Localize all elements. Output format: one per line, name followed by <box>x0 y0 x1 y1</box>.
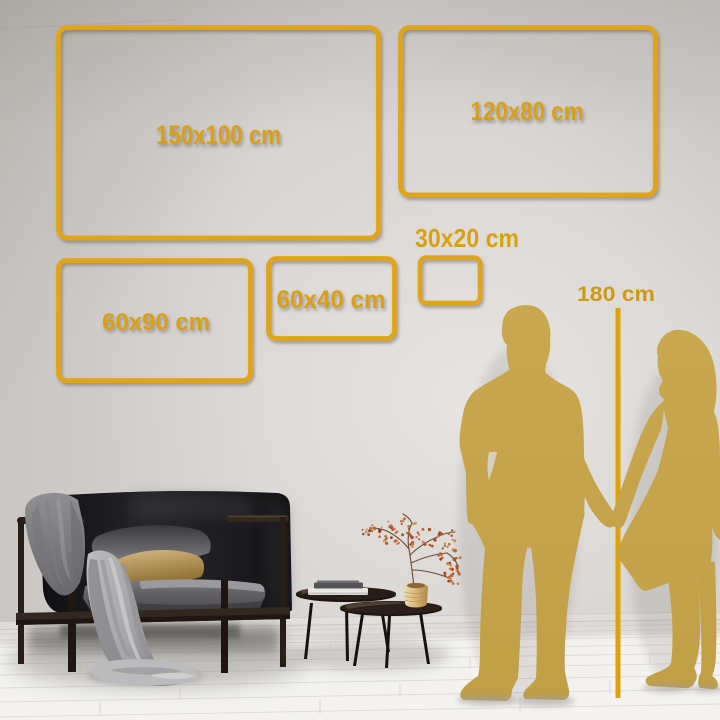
svg-text:60x40 cm: 60x40 cm <box>277 286 386 314</box>
svg-text:30x20 cm: 30x20 cm <box>415 223 519 253</box>
svg-text:150x100 cm: 150x100 cm <box>156 120 281 150</box>
svg-text:180 cm: 180 cm <box>577 282 655 306</box>
svg-text:60x90 cm: 60x90 cm <box>102 309 210 336</box>
svg-text:120x80 cm: 120x80 cm <box>471 96 584 126</box>
